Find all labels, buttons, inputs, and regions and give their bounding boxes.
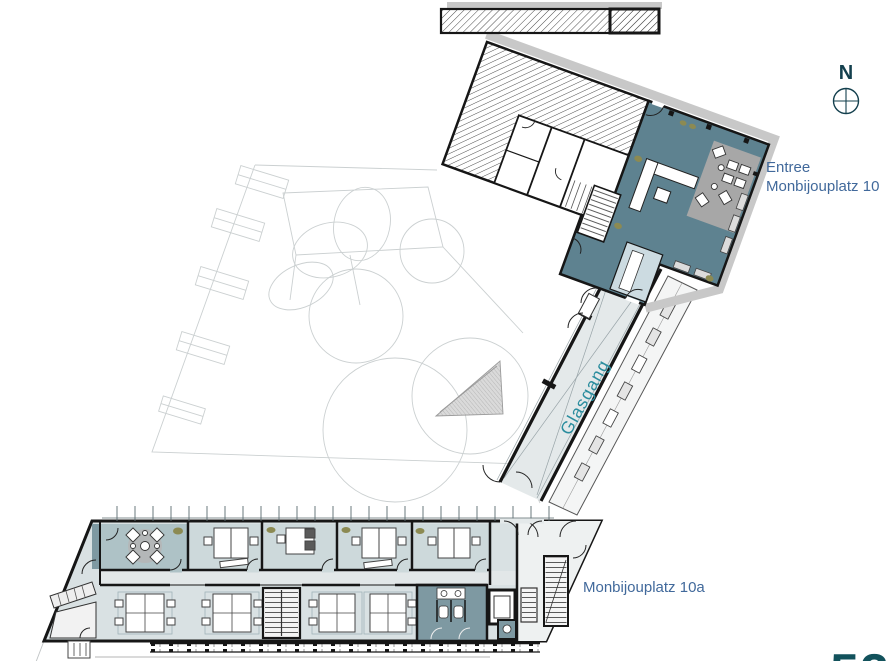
glasgang-corridor: Glasgang bbox=[483, 250, 697, 515]
north-letter: N bbox=[839, 62, 853, 84]
exterior-stair-stub bbox=[68, 641, 90, 658]
floor-plan-drawing: Glasgang bbox=[0, 0, 889, 661]
entree-label-line1: Entree bbox=[766, 159, 810, 176]
monbijouplatz10a-label: Monbijouplatz 10a bbox=[583, 579, 705, 596]
central-staircase bbox=[263, 588, 300, 638]
corridor-floor bbox=[100, 571, 517, 585]
plant bbox=[173, 528, 183, 535]
north-arrow-icon: N bbox=[834, 62, 859, 114]
page-number: 52 bbox=[830, 644, 889, 661]
entree-label-line2: Monbijouplatz 10 bbox=[766, 178, 879, 195]
neighbour-building-band bbox=[441, 2, 662, 33]
lower-building bbox=[44, 506, 601, 658]
wc-small-room bbox=[498, 620, 516, 639]
ramp bbox=[436, 361, 503, 416]
window-mullions-top bbox=[102, 506, 554, 521]
upper-building bbox=[417, 34, 774, 329]
wc-core bbox=[417, 585, 487, 641]
elevator bbox=[489, 590, 515, 624]
floor-plan-page: Glasgang bbox=[0, 0, 889, 661]
window-band-bottom bbox=[95, 643, 540, 657]
